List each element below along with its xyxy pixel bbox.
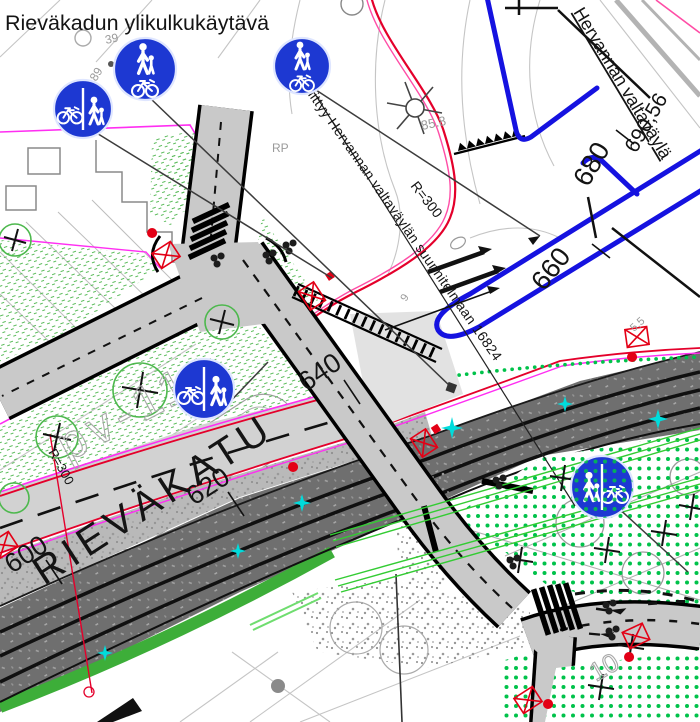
sign-ped-cycle-divided xyxy=(571,456,633,518)
ghost-label: RP xyxy=(272,141,289,155)
dots-overlay xyxy=(571,456,633,518)
gray-blob xyxy=(271,679,285,693)
lane-dash-mark xyxy=(648,602,657,606)
sign-cycle-ped-divided xyxy=(174,359,234,419)
sign-cycle-ped-divided xyxy=(54,80,112,138)
plan-title: Rieväkadun ylikulkukäytävä xyxy=(5,11,269,35)
lane-dash-mark xyxy=(676,600,685,603)
road-plan-canvas: Rieväkadun ylikulkukäytävä Liittyy Herva… xyxy=(0,0,700,722)
sign-cycle-ped-combined xyxy=(114,38,176,100)
sign-cycle-ped-combined xyxy=(274,38,330,94)
tree-star-circle xyxy=(406,99,424,117)
